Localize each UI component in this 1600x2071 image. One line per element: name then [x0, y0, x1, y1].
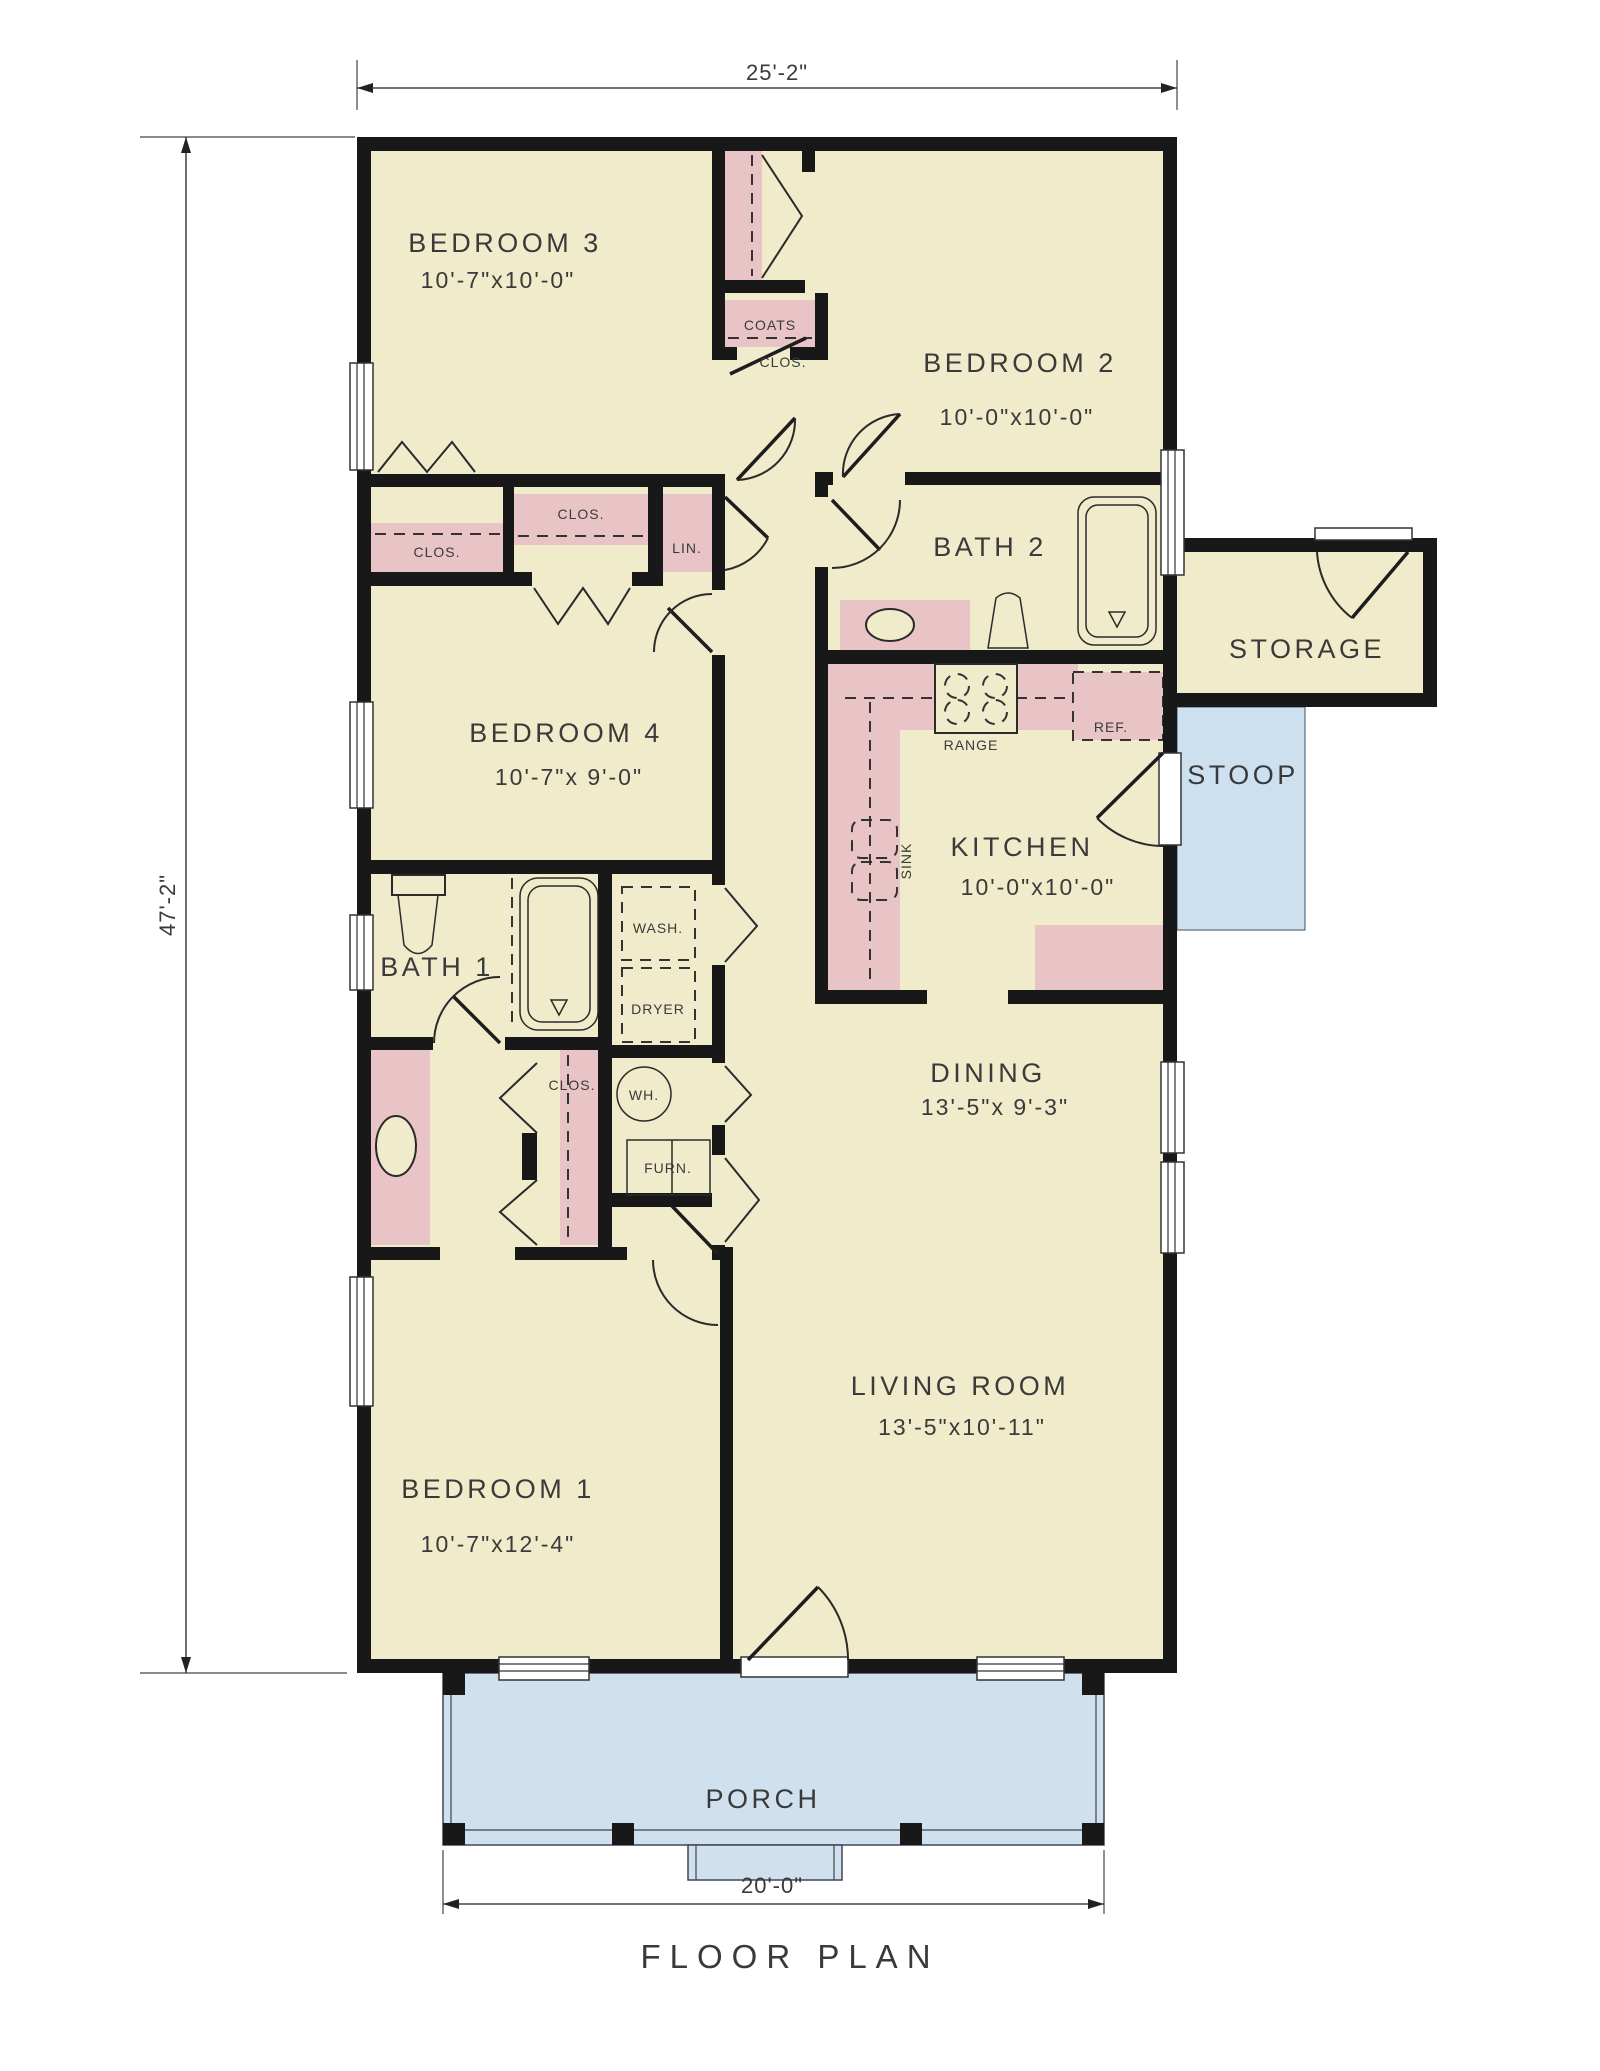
window-bedroom1 — [350, 1277, 373, 1406]
drawing-title: FLOOR PLAN — [640, 1938, 939, 1975]
size-kitchen: 10'-0"x10'-0" — [961, 874, 1116, 900]
water-heater-label: WH. — [629, 1087, 659, 1103]
storage-door-threshold — [1315, 528, 1412, 540]
window-bath1 — [350, 915, 373, 990]
label-bedroom3: BEDROOM 3 — [408, 228, 602, 258]
size-bedroom3: 10'-7"x10'-0" — [421, 267, 576, 293]
label-kitchen: KITCHEN — [950, 832, 1093, 862]
washer-label: WASH. — [633, 920, 683, 936]
ref-label: REF. — [1094, 719, 1128, 735]
dim-overall-width: 25'-2" — [746, 60, 808, 85]
size-bedroom4: 10'-7"x 9'-0" — [495, 764, 643, 790]
window-bedroom1-front — [499, 1657, 589, 1680]
floor-plan-drawing: 25'-2" 47'-2" 20'-0" BEDROOM 3 10'-7"x10… — [0, 0, 1600, 2071]
dim-overall-depth: 47'-2" — [155, 874, 180, 936]
label-porch: PORCH — [705, 1784, 820, 1814]
window-bedroom3 — [350, 363, 373, 470]
size-dining: 13'-5"x 9'-3" — [921, 1094, 1069, 1120]
kitchen-range — [935, 664, 1017, 733]
closet-label-bed4: CLOS. — [557, 506, 604, 522]
sink-label: SINK — [898, 843, 914, 880]
range-label: RANGE — [944, 737, 999, 753]
size-bedroom1: 10'-7"x12'-4" — [421, 1531, 576, 1557]
label-bedroom2: BEDROOM 2 — [923, 348, 1117, 378]
window-bedroom4 — [350, 702, 373, 808]
bath1-sink — [376, 1116, 416, 1176]
linen-label: LIN. — [672, 540, 702, 556]
label-bath2: BATH 2 — [933, 532, 1047, 562]
closet-label-bed2: CLOS. — [759, 354, 806, 370]
label-living: LIVING ROOM — [851, 1371, 1070, 1401]
label-bedroom1: BEDROOM 1 — [401, 1474, 595, 1504]
furnace-label: FURN. — [644, 1160, 692, 1176]
label-bath1: BATH 1 — [380, 952, 494, 982]
window-living-front — [977, 1657, 1064, 1680]
closet-label-bath1: CLOS. — [548, 1077, 595, 1093]
size-bedroom2: 10'-0"x10'-0" — [940, 404, 1095, 430]
front-door-threshold — [741, 1657, 848, 1677]
window-dining — [1161, 1062, 1184, 1153]
floor-fills — [357, 137, 1437, 1880]
coats-label: COATS — [744, 317, 796, 333]
label-bedroom4: BEDROOM 4 — [469, 718, 663, 748]
dryer-label: DRYER — [631, 1001, 685, 1017]
size-living: 13'-5"x10'-11" — [878, 1414, 1046, 1440]
bath2-sink — [866, 609, 914, 641]
label-stoop: STOOP — [1187, 760, 1299, 790]
dim-porch-width: 20'-0" — [741, 1873, 803, 1898]
window-bedroom2 — [1161, 450, 1184, 575]
stoop-door-opening — [1159, 753, 1181, 845]
floor-plan-page: 25'-2" 47'-2" 20'-0" BEDROOM 3 10'-7"x10… — [0, 0, 1600, 2071]
closet-label-bed3: CLOS. — [413, 544, 460, 560]
label-dining: DINING — [930, 1058, 1046, 1088]
window-living-side — [1161, 1162, 1184, 1253]
label-storage: STORAGE — [1229, 634, 1385, 664]
